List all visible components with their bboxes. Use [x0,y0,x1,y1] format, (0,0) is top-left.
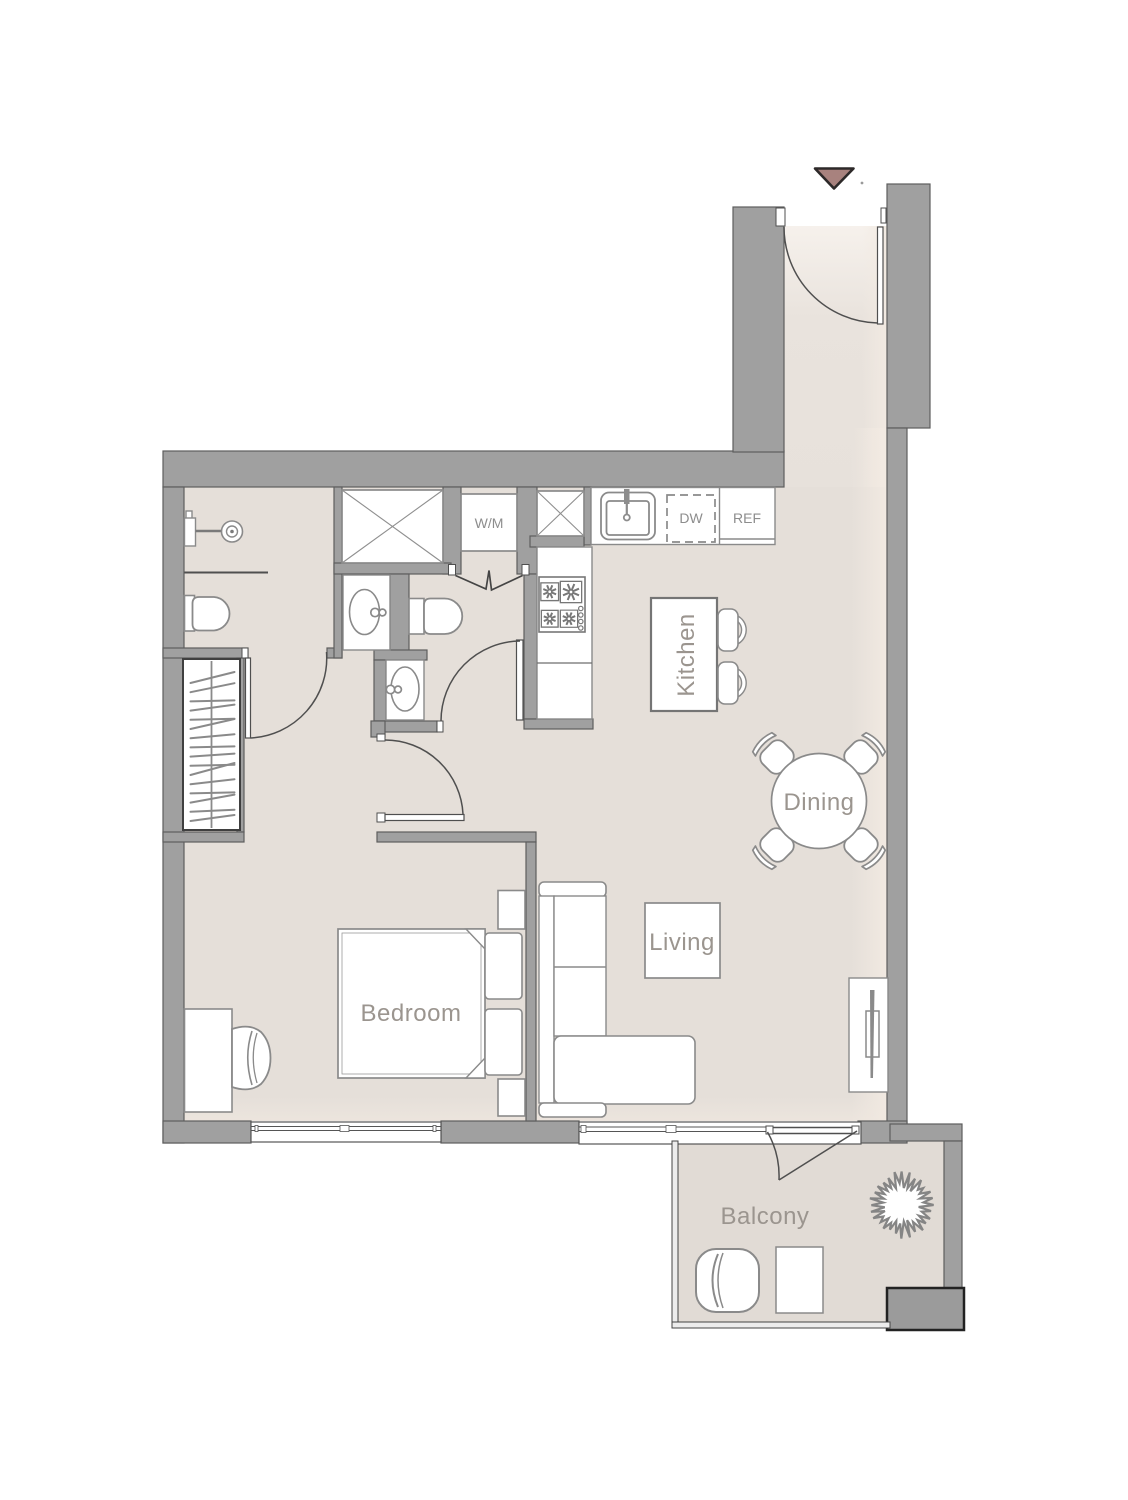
svg-text:REF: REF [733,510,761,526]
svg-text:Living: Living [649,929,715,956]
svg-text:Kitchen: Kitchen [673,613,700,697]
svg-text:DW: DW [679,510,703,526]
svg-text:Dining: Dining [783,789,854,816]
svg-text:Bedroom: Bedroom [361,1000,462,1027]
svg-text:W/M: W/M [475,515,504,531]
svg-text:Balcony: Balcony [721,1203,810,1230]
